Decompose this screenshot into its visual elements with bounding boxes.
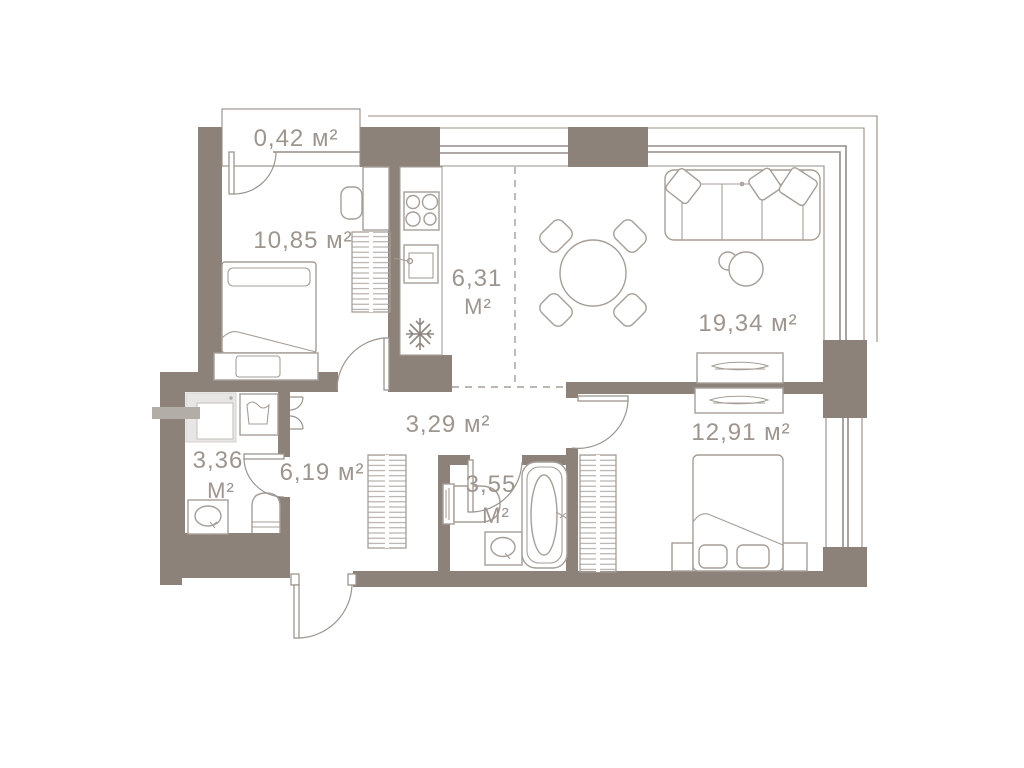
living-room-furniture xyxy=(664,166,820,383)
wall-bathroom1-south xyxy=(160,533,290,578)
wall-right-pier xyxy=(823,340,867,418)
wall-kitchen-south-block xyxy=(388,355,452,392)
kitchen-furniture xyxy=(394,167,442,355)
entry-hall-furniture xyxy=(368,455,406,548)
wall-bathroom1-step xyxy=(160,578,182,585)
bathroom1-door-leaf xyxy=(244,454,284,459)
bed-pillow xyxy=(737,545,769,568)
wardrobe-divider xyxy=(596,455,600,572)
side-table-icon xyxy=(729,252,763,286)
closet-double-doors xyxy=(290,397,303,429)
bathroom1-area-unit: М² xyxy=(207,478,235,503)
bedroom2-door-swing xyxy=(572,401,628,448)
nightstand-icon xyxy=(672,543,693,571)
wall-bathroom1-east-upper xyxy=(278,392,290,457)
shower-bar xyxy=(152,407,200,419)
bathroom2-area-unit: М² xyxy=(482,503,510,528)
bedroom2-window xyxy=(843,418,848,547)
bathroom2-area-value: 3,55 xyxy=(466,471,517,498)
dining-set xyxy=(537,217,649,329)
living-room-area-label: 19,34 м² xyxy=(698,310,797,337)
shower-head xyxy=(229,396,233,400)
balcony-area-label: 0,42 м² xyxy=(254,125,339,152)
bedroom2-furniture xyxy=(580,388,807,572)
wall-top-pier-1 xyxy=(360,127,440,167)
hallway-area-label: 3,29 м² xyxy=(406,411,491,438)
bedroom2-window-frame xyxy=(826,418,862,547)
wall-right-bottom-block xyxy=(823,547,867,587)
kitchen-area-unit: М² xyxy=(464,294,492,319)
bedroom1-door-leaf xyxy=(384,338,389,390)
dresser-icon xyxy=(695,388,783,413)
entrance-strike-post xyxy=(348,574,356,585)
bedroom1-furniture xyxy=(214,167,390,380)
bedroom1-area-label: 10,85 м² xyxy=(253,227,352,254)
wall-left xyxy=(198,127,222,392)
bedroom2-area-label: 12,91 м² xyxy=(691,419,790,446)
wardrobe-divider xyxy=(369,232,373,312)
wall-bathroom2-north-left xyxy=(438,455,470,465)
sink-icon xyxy=(188,500,228,534)
bed-footboard xyxy=(214,353,318,380)
desk-icon xyxy=(363,167,389,230)
tv-stand-icon xyxy=(697,353,783,383)
bedroom2-door-leaf xyxy=(578,396,628,401)
bathroom1-area-value: 3,36 xyxy=(193,447,244,474)
balcony-door-swing xyxy=(234,152,276,194)
kitchen-window-frame xyxy=(440,128,568,166)
entrance-door-leaf xyxy=(294,585,299,638)
wardrobe-divider xyxy=(385,455,389,548)
chair-icon xyxy=(341,187,362,219)
wall-top-pier-2 xyxy=(568,127,648,167)
entrance-door-swing xyxy=(299,585,352,638)
balcony-door-leaf xyxy=(229,152,234,194)
kitchen-window xyxy=(440,146,568,153)
refrigerator-snowflake-icon xyxy=(406,318,434,350)
bedroom1-door-swing xyxy=(337,338,384,390)
nightstand-icon xyxy=(783,543,807,571)
bathroom1-door-swing xyxy=(244,459,284,497)
bed-icon xyxy=(222,262,316,353)
dining-table-icon xyxy=(560,240,626,306)
wall-bottom xyxy=(353,571,865,587)
entry-hall-area-label: 6,19 м² xyxy=(280,459,365,486)
entrance-hinge-post xyxy=(291,574,299,585)
washing-machine-icon xyxy=(240,394,278,435)
wall-bathroom2-east xyxy=(566,448,578,571)
kitchen-area-value: 6,31 xyxy=(452,265,503,292)
floor-plan: 0,42 м² 10,85 м² 6,31 М² 19,34 м² 3,29 м… xyxy=(0,0,1024,768)
bed-pillow xyxy=(699,545,727,568)
shower-tray xyxy=(197,403,233,439)
floor-plan-page: 0,42 м² 10,85 м² 6,31 М² 19,34 м² 3,29 м… xyxy=(0,0,1024,768)
